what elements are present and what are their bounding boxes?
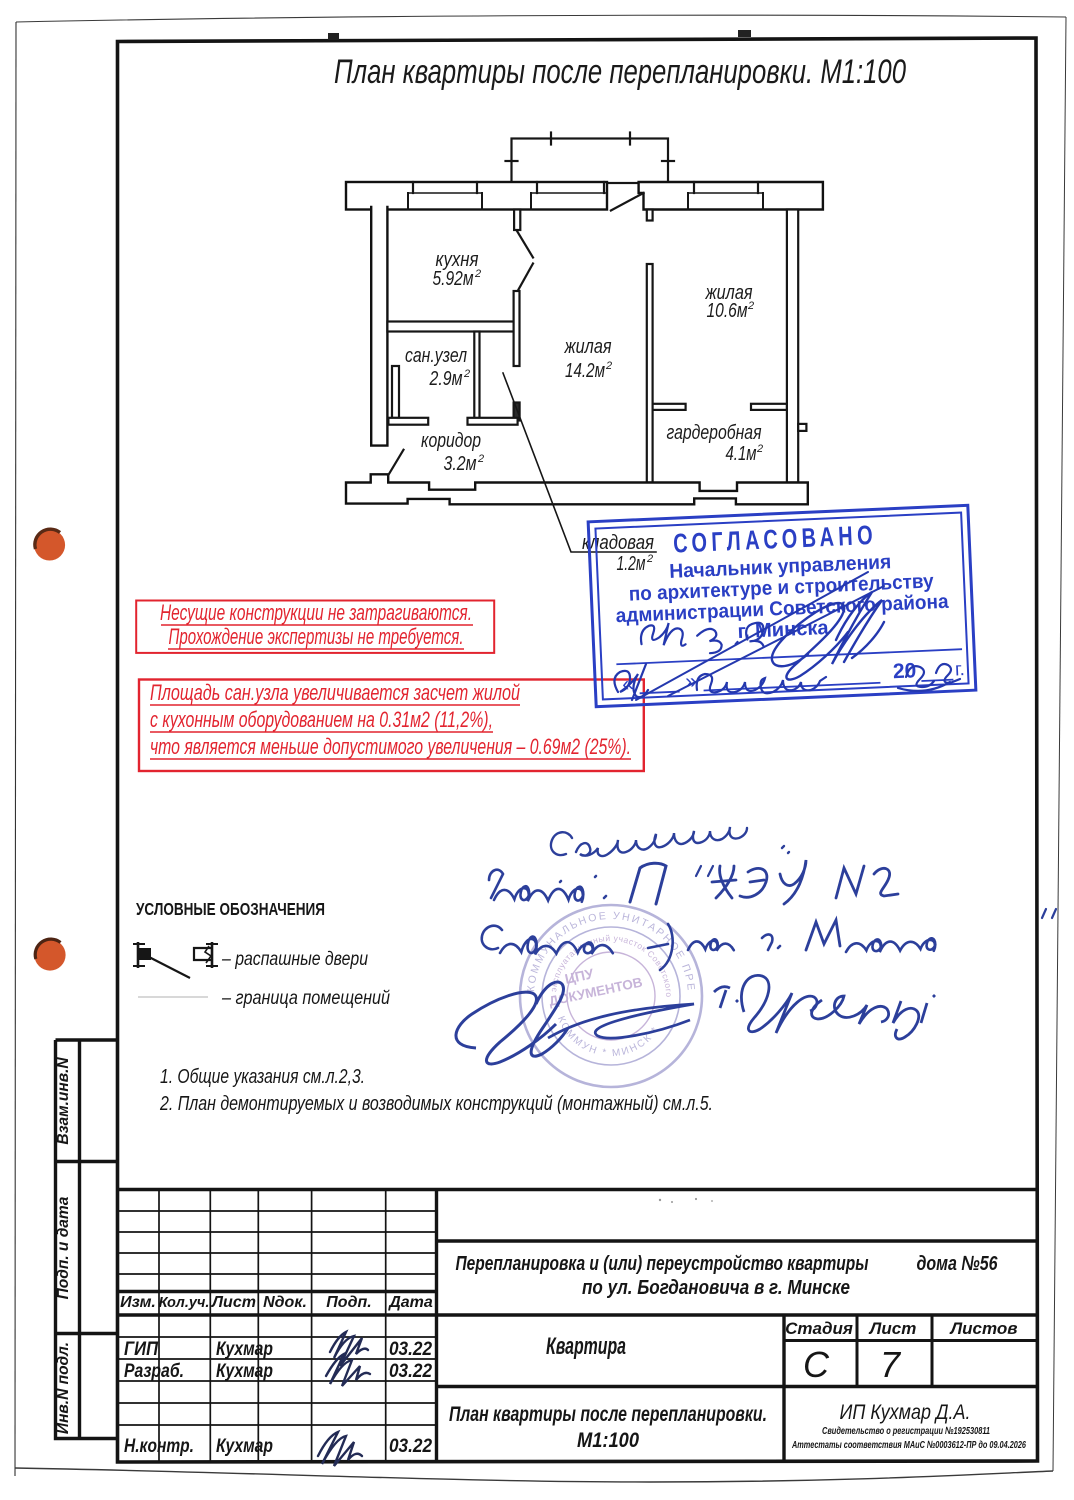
svg-text:Свидетельство о регистрации №1: Свидетельство о регистрации №192530811	[822, 1425, 990, 1437]
svg-text:2: 2	[646, 553, 653, 565]
svg-text:20: 20	[892, 659, 916, 683]
svg-text:Разраб.: Разраб.	[124, 1361, 184, 1382]
svg-text:С: С	[803, 1344, 830, 1385]
svg-text:2: 2	[756, 443, 763, 455]
svg-text:Кухмар: Кухмар	[216, 1361, 273, 1382]
svg-text:Инв.N подл.: Инв.N подл.	[55, 1342, 72, 1434]
svg-text:2: 2	[605, 360, 612, 372]
svg-text:Лист: Лист	[211, 1294, 256, 1311]
svg-text:Перепланировка и (или) переуст: Перепланировка и (или) переустройство кв…	[456, 1252, 869, 1275]
svg-text:ИП Кухмар Д.А.: ИП Кухмар Д.А.	[840, 1401, 971, 1424]
svg-text:3.2м: 3.2м	[444, 453, 477, 475]
svg-text:Кухмар: Кухмар	[216, 1436, 273, 1457]
svg-text:03.22: 03.22	[389, 1436, 432, 1457]
svg-text:что является меньше допустимог: что является меньше допустимого увеличен…	[150, 734, 631, 759]
svg-text:5.92м: 5.92м	[433, 268, 474, 290]
svg-text:Дата: Дата	[387, 1294, 433, 1311]
svg-text:по ул. Богдановича в г. Минске: по ул. Богдановича в г. Минске	[582, 1276, 850, 1299]
svg-text:Площадь сан.узла увеличивается: Площадь сан.узла увеличивается засчет жи…	[150, 680, 520, 705]
svg-text:УСЛОВНЫЕ ОБОЗНАЧЕНИЯ: УСЛОВНЫЕ ОБОЗНАЧЕНИЯ	[136, 899, 325, 919]
svg-text:гардеробная: гардеробная	[667, 422, 762, 444]
svg-text:коридор: коридор	[421, 430, 481, 452]
svg-text:Листов: Листов	[948, 1319, 1017, 1338]
svg-text:Кухмар: Кухмар	[216, 1339, 273, 1360]
svg-text:жилая: жилая	[564, 336, 612, 358]
svg-text:с кухонным оборудованием на 0: с кухонным оборудованием на 0.31м2 (11,2…	[150, 707, 493, 732]
svg-text:14.2м: 14.2м	[565, 360, 605, 382]
svg-text:Взам.инв.N: Взам.инв.N	[55, 1057, 72, 1145]
svg-text:7: 7	[880, 1344, 902, 1385]
svg-text:План квартиры после перепланир: План квартиры после перепланировки.	[449, 1403, 767, 1426]
svg-text:кладовая: кладовая	[582, 532, 654, 554]
svg-text:Изм.: Изм.	[120, 1294, 156, 1311]
svg-text:Н.контр.: Н.контр.	[124, 1436, 194, 1457]
svg-text:03.22: 03.22	[389, 1339, 432, 1360]
svg-text:Стадия: Стадия	[785, 1319, 853, 1338]
svg-text:2: 2	[474, 268, 481, 280]
svg-text:Квартира: Квартира	[546, 1333, 626, 1360]
svg-text:Подп. и дата: Подп. и дата	[55, 1196, 72, 1299]
svg-text:Nдок.: Nдок.	[263, 1294, 307, 1311]
svg-text:Несущие конструкции не затраги: Несущие конструкции не затрагиваются.	[160, 600, 472, 625]
svg-text:1. Общие указания см.л.2,3.: 1. Общие указания см.л.2,3.	[160, 1065, 365, 1088]
svg-text:Аттестаты соответствия МАиС №0: Аттестаты соответствия МАиС №0003612-ПР …	[791, 1439, 1026, 1451]
svg-text:Лист: Лист	[868, 1319, 917, 1338]
svg-text:дома №56: дома №56	[917, 1252, 998, 1275]
svg-text:2: 2	[747, 300, 754, 312]
svg-text:2: 2	[463, 368, 470, 380]
svg-text:сан.узел: сан.узел	[405, 345, 467, 367]
svg-text:2: 2	[477, 453, 484, 465]
svg-text:2. План демонтируемых и возво: 2. План демонтируемых и возводимых конст…	[159, 1092, 713, 1115]
svg-text:г.: г.	[954, 659, 965, 680]
svg-text:Прохождение экспертизы не треб: Прохождение экспертизы не требуется.	[169, 624, 464, 649]
svg-text:03.22: 03.22	[389, 1361, 432, 1382]
svg-text:1.2м: 1.2м	[617, 553, 646, 575]
svg-text:– распашные двери: – распашные двери	[221, 948, 368, 970]
svg-text:4.1м: 4.1м	[726, 443, 757, 465]
svg-text:Кол.уч.: Кол.уч.	[159, 1295, 210, 1311]
svg-text:М1:100: М1:100	[577, 1429, 639, 1452]
svg-text:2.9м: 2.9м	[429, 368, 463, 390]
svg-text:– граница помещений: – граница помещений	[221, 987, 390, 1009]
svg-text:План квартиры после перепланир: План квартиры после перепланировки. М1:1…	[334, 53, 906, 91]
svg-text:Подп.: Подп.	[326, 1294, 371, 1311]
svg-text:ГИП: ГИП	[124, 1339, 158, 1360]
svg-text:10.6м: 10.6м	[707, 300, 748, 322]
